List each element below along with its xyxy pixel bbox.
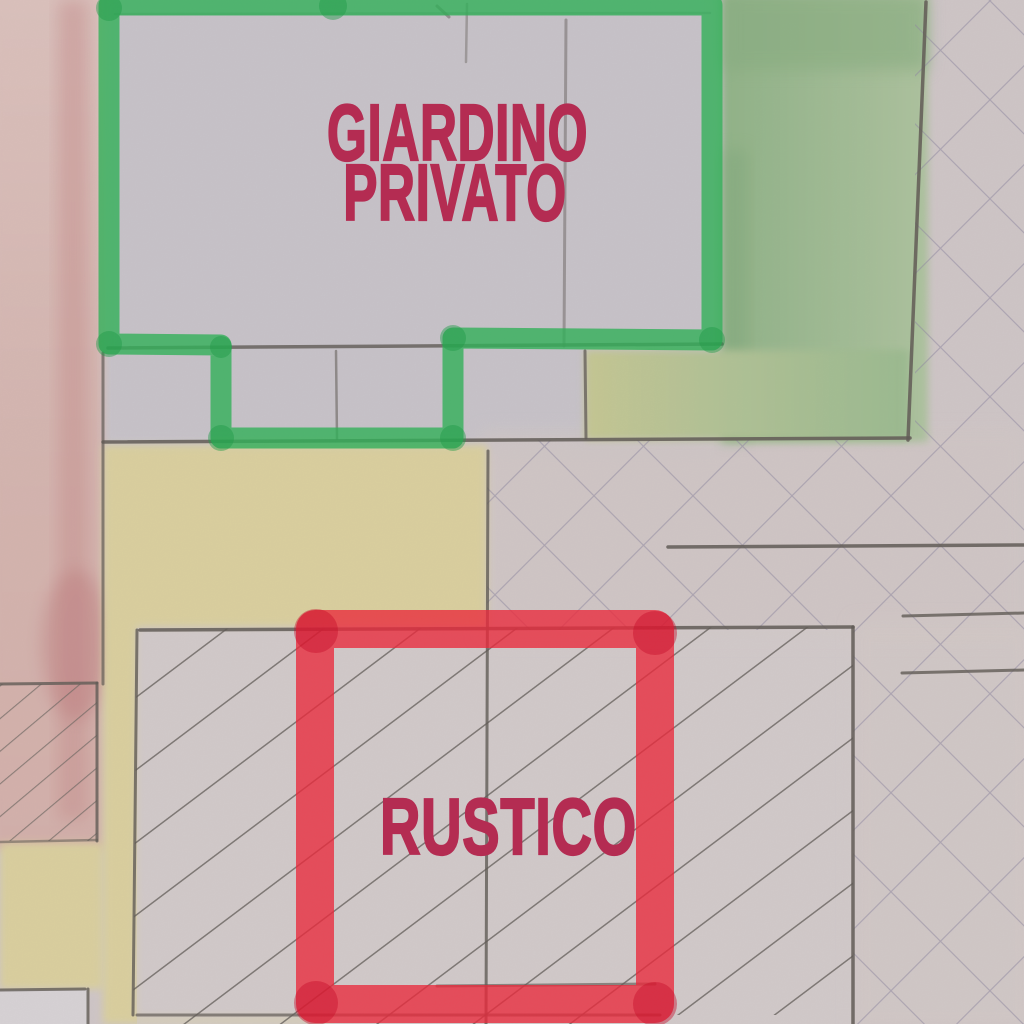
site-plan-photo: GIARDINO PRIVATO RUSTICO <box>0 0 1024 1024</box>
rustico-label: RUSTICO <box>380 796 590 858</box>
garden-label: GIARDINO PRIVATO <box>327 103 583 223</box>
garden-label-line2: PRIVATO <box>327 163 583 223</box>
